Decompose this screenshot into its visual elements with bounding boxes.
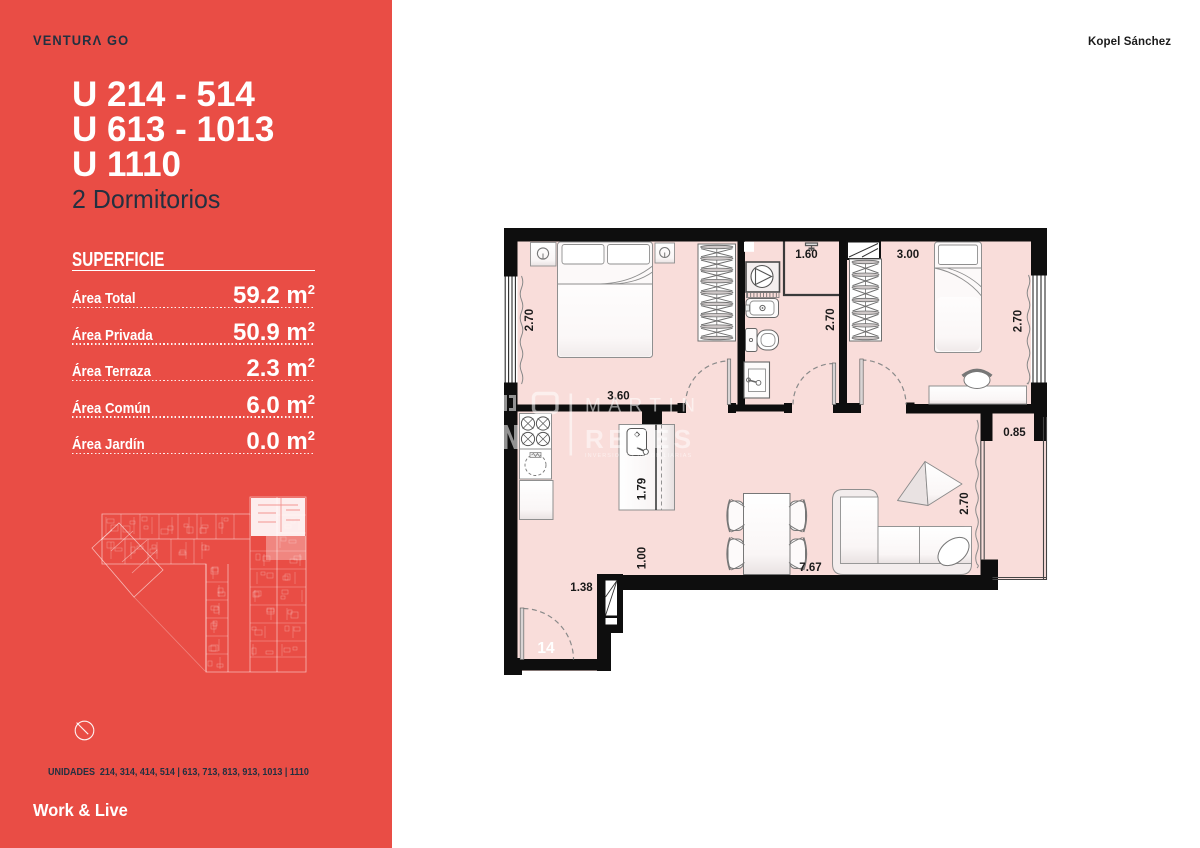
svg-text:7.67: 7.67: [799, 562, 821, 574]
svg-text:MARTIN: MARTIN: [585, 396, 702, 417]
svg-text:14: 14: [537, 640, 555, 657]
svg-text:2.70: 2.70: [524, 309, 536, 331]
svg-text:1.79: 1.79: [637, 478, 649, 500]
svg-text:1.60: 1.60: [795, 249, 817, 261]
svg-text:2.70: 2.70: [959, 492, 971, 514]
svg-text:2.70: 2.70: [825, 308, 837, 330]
svg-text:1.38: 1.38: [570, 582, 593, 594]
svg-text:2.70: 2.70: [1013, 310, 1025, 332]
svg-text:INVERSIONES INMOBILIARIAS: INVERSIONES INMOBILIARIAS: [585, 453, 692, 459]
svg-text:0.85: 0.85: [1003, 427, 1026, 439]
svg-text:1.00: 1.00: [637, 547, 649, 569]
svg-text:REYES: REYES: [585, 424, 696, 454]
svg-text:3.00: 3.00: [897, 249, 919, 261]
